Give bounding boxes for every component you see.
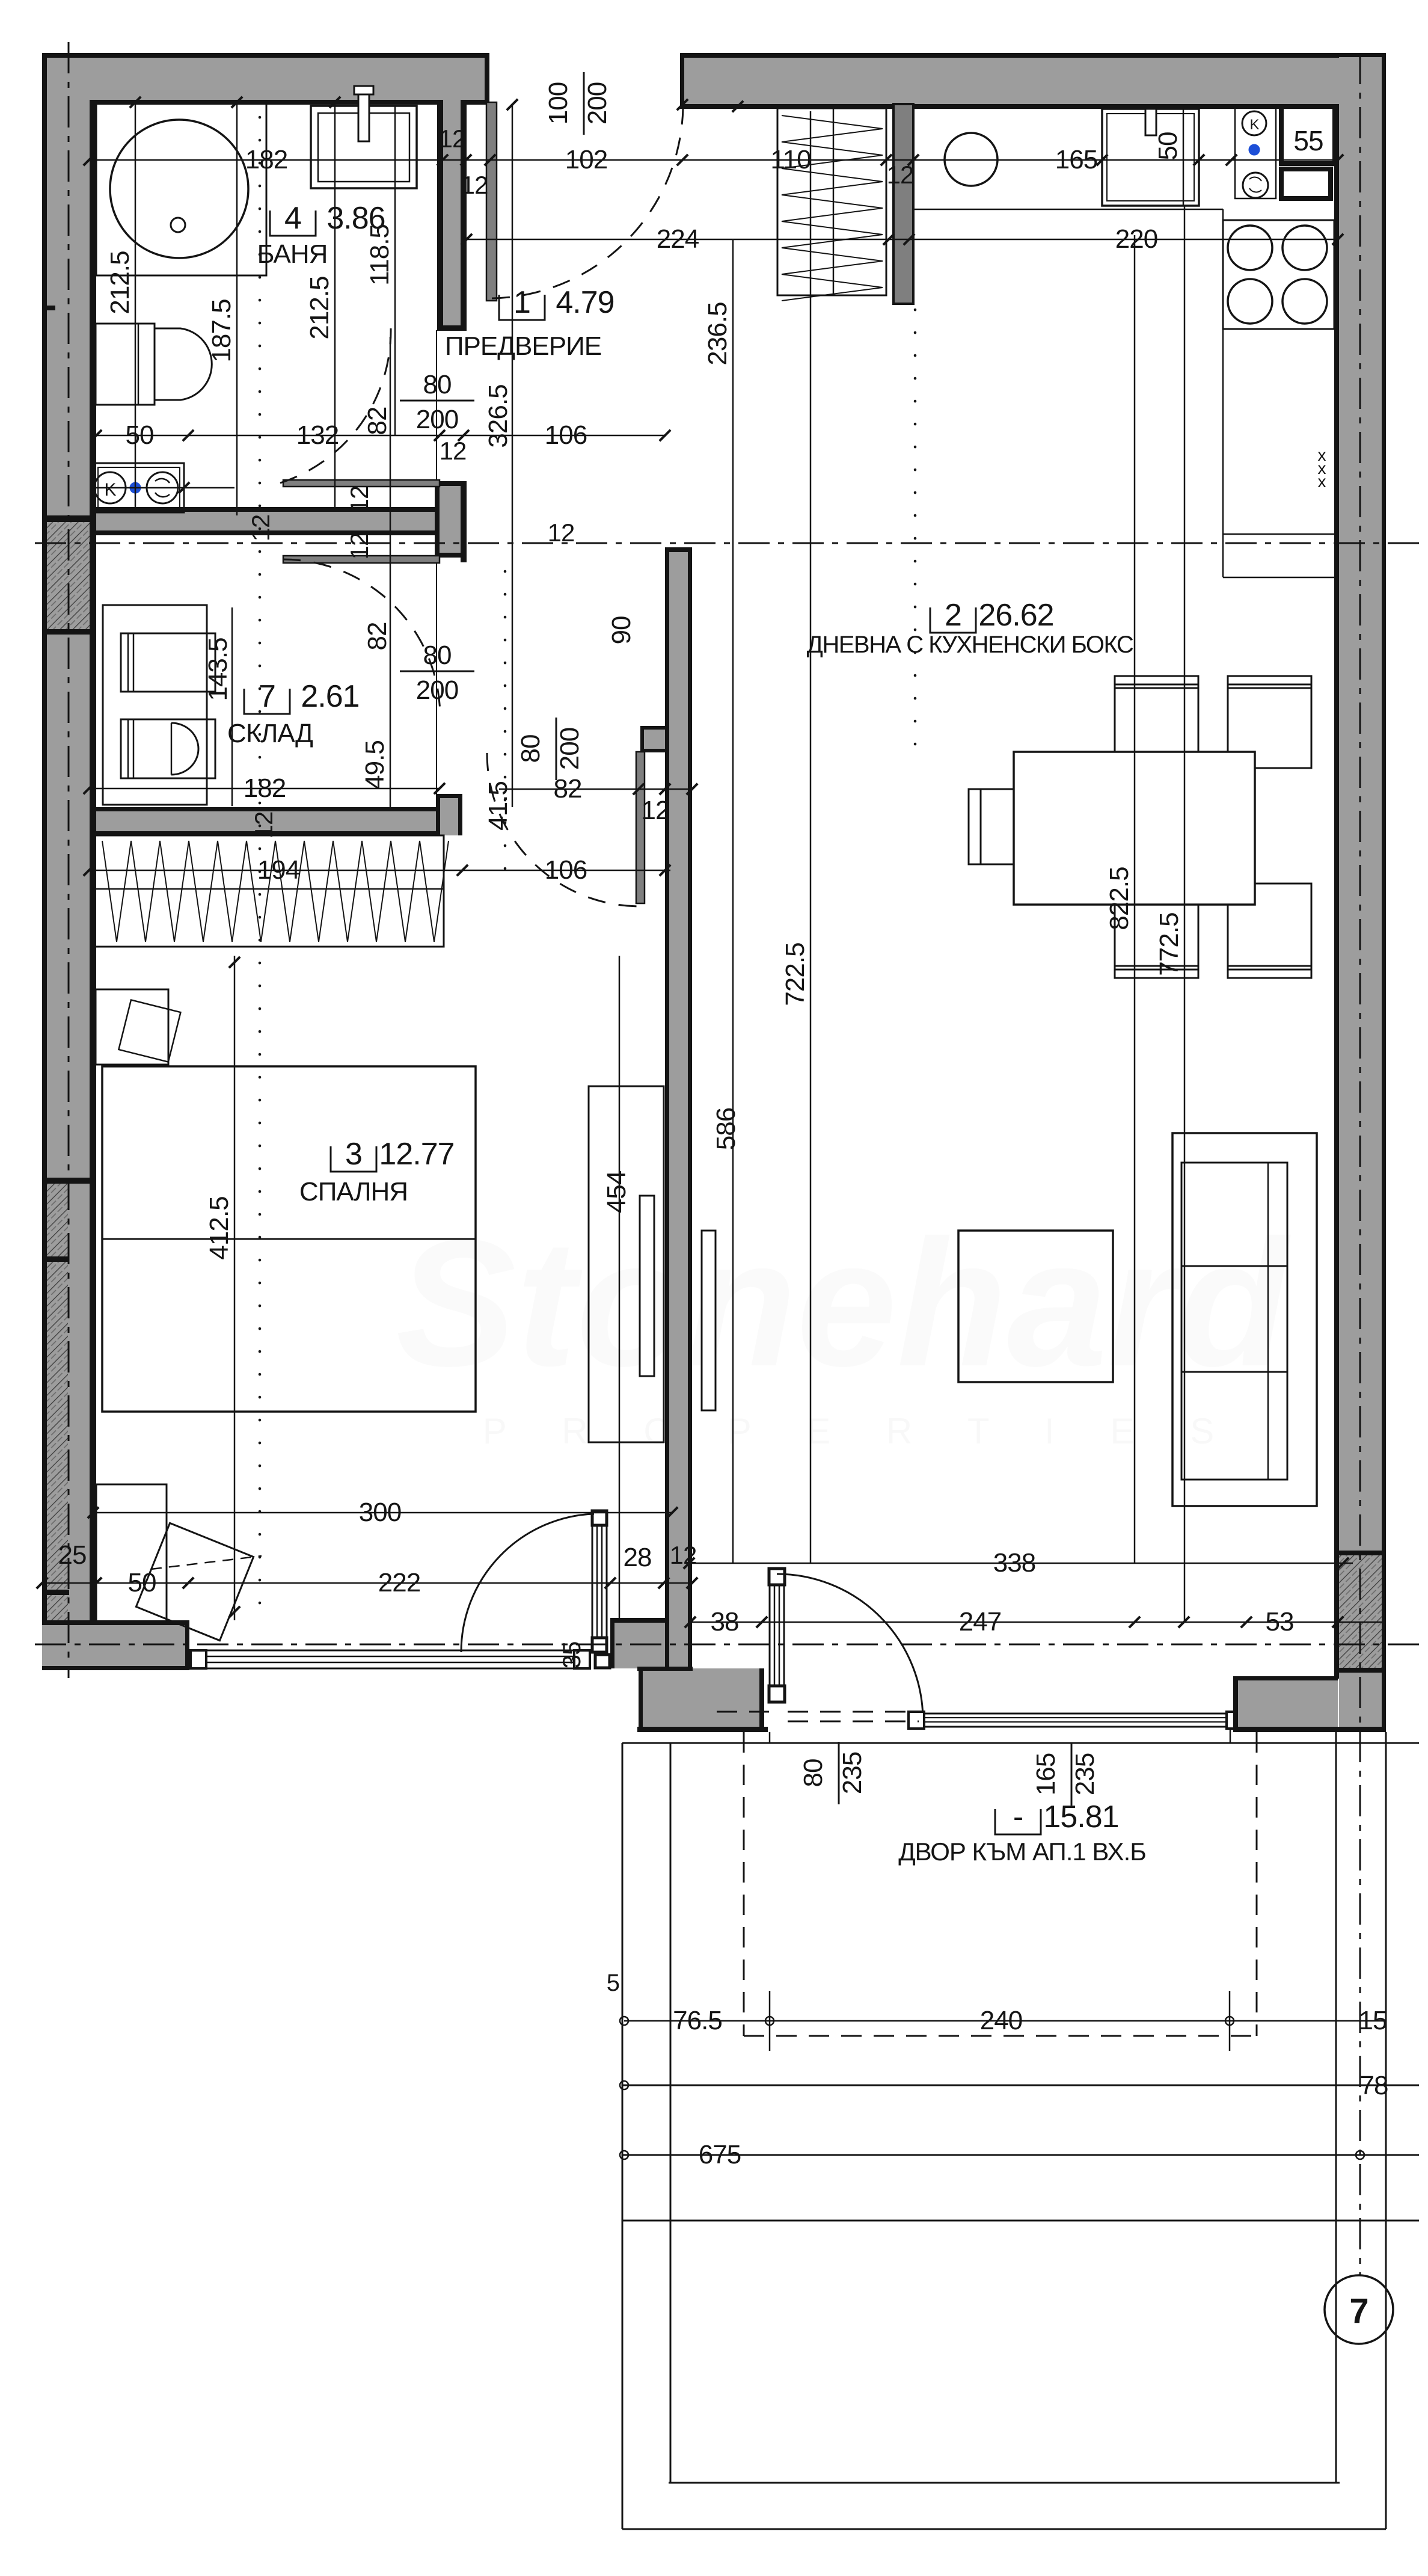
svg-text:41.5: 41.5 xyxy=(483,781,513,831)
svg-text:5: 5 xyxy=(607,1970,619,1996)
svg-text:50: 50 xyxy=(128,1568,156,1597)
svg-text:СПАЛНЯ: СПАЛНЯ xyxy=(299,1177,408,1207)
svg-text:СКЛАД: СКЛАД xyxy=(227,719,313,748)
svg-text:Stonehard: Stonehard xyxy=(396,1202,1293,1404)
svg-text:12: 12 xyxy=(250,812,278,839)
svg-text:412.5: 412.5 xyxy=(204,1196,234,1259)
svg-text:822.5: 822.5 xyxy=(1105,867,1134,930)
svg-text:165: 165 xyxy=(1031,1753,1061,1795)
svg-text:78: 78 xyxy=(1360,2071,1388,2100)
svg-text:50: 50 xyxy=(1153,132,1183,161)
svg-text:80: 80 xyxy=(423,370,452,399)
svg-text:15.81: 15.81 xyxy=(1043,1800,1118,1834)
svg-text:15: 15 xyxy=(1359,2006,1387,2035)
svg-text:55: 55 xyxy=(1293,125,1323,156)
svg-text:165: 165 xyxy=(1055,145,1097,174)
svg-text:3.86: 3.86 xyxy=(326,201,385,236)
svg-text:28: 28 xyxy=(624,1543,652,1572)
svg-text:194: 194 xyxy=(257,855,300,885)
svg-text:240: 240 xyxy=(980,2006,1022,2035)
svg-text:200: 200 xyxy=(555,728,584,770)
svg-text:300: 300 xyxy=(359,1498,401,1527)
svg-text:49.5: 49.5 xyxy=(360,740,390,790)
svg-text:35: 35 xyxy=(557,1642,586,1669)
svg-text:132: 132 xyxy=(296,420,339,450)
svg-text:x: x xyxy=(1318,472,1326,491)
svg-text:3: 3 xyxy=(345,1137,362,1172)
svg-text:82: 82 xyxy=(554,774,582,804)
svg-text:P R O P E R T I E S: P R O P E R T I E S xyxy=(483,1411,1237,1451)
svg-text:12: 12 xyxy=(345,533,373,560)
svg-text:12: 12 xyxy=(440,437,467,465)
svg-text:80: 80 xyxy=(516,735,545,763)
svg-text:90: 90 xyxy=(607,616,636,645)
svg-text:K: K xyxy=(1249,117,1259,133)
svg-text:143.5: 143.5 xyxy=(203,638,233,701)
svg-text:26.62: 26.62 xyxy=(978,598,1053,633)
svg-text:182: 182 xyxy=(244,773,286,803)
svg-text:220: 220 xyxy=(1115,224,1157,254)
svg-text:4.79: 4.79 xyxy=(556,285,614,320)
svg-text:12: 12 xyxy=(345,486,373,513)
svg-text:187.5: 187.5 xyxy=(207,299,236,362)
svg-text:76.5: 76.5 xyxy=(673,2006,722,2035)
svg-text:12: 12 xyxy=(548,518,575,547)
svg-text:222: 222 xyxy=(378,1568,420,1597)
svg-text:326.5: 326.5 xyxy=(483,384,513,447)
svg-text:586: 586 xyxy=(711,1108,741,1150)
svg-text:236.5: 236.5 xyxy=(703,302,732,365)
svg-text:82: 82 xyxy=(363,622,392,651)
svg-text:200: 200 xyxy=(583,82,612,124)
svg-text:722.5: 722.5 xyxy=(780,942,810,1006)
svg-text:4: 4 xyxy=(284,201,301,236)
svg-text:1: 1 xyxy=(513,285,530,320)
svg-text:454: 454 xyxy=(602,1170,631,1213)
svg-text:2.61: 2.61 xyxy=(301,679,359,714)
svg-text:772.5: 772.5 xyxy=(1154,912,1184,976)
svg-text:50: 50 xyxy=(126,420,154,450)
svg-text:247: 247 xyxy=(959,1607,1001,1637)
svg-text:12: 12 xyxy=(887,161,914,189)
svg-text:102: 102 xyxy=(565,145,607,174)
svg-text:338: 338 xyxy=(993,1548,1035,1578)
svg-text:K: K xyxy=(104,480,116,500)
svg-text:7: 7 xyxy=(259,679,275,714)
svg-text:-: - xyxy=(1013,1800,1023,1834)
svg-text:12: 12 xyxy=(642,796,670,825)
svg-text:80: 80 xyxy=(798,1759,828,1788)
svg-text:БАНЯ: БАНЯ xyxy=(257,239,328,269)
svg-text:224: 224 xyxy=(657,224,699,254)
svg-text:ДВОР КЪМ АП.1 ВХ.Б: ДВОР КЪМ АП.1 ВХ.Б xyxy=(898,1837,1146,1866)
svg-text:200: 200 xyxy=(416,405,458,434)
svg-text:12: 12 xyxy=(670,1541,697,1569)
svg-text:182: 182 xyxy=(245,145,287,174)
svg-text:106: 106 xyxy=(545,420,587,450)
svg-text:ДНЕВНА С КУХНЕНСКИ БОКС: ДНЕВНА С КУХНЕНСКИ БОКС xyxy=(807,632,1133,658)
svg-text:38: 38 xyxy=(711,1607,739,1637)
svg-text:212.5: 212.5 xyxy=(105,251,135,314)
svg-text:12: 12 xyxy=(247,515,275,542)
svg-text:53: 53 xyxy=(1266,1607,1294,1637)
svg-text:2: 2 xyxy=(945,598,961,633)
svg-text:200: 200 xyxy=(416,675,458,705)
svg-text:12.77: 12.77 xyxy=(379,1137,454,1172)
svg-text:25: 25 xyxy=(58,1540,87,1570)
svg-text:12: 12 xyxy=(461,171,488,199)
svg-text:235: 235 xyxy=(838,1752,867,1794)
svg-text:235: 235 xyxy=(1070,1753,1100,1795)
svg-text:12: 12 xyxy=(439,124,466,153)
svg-text:ПРЕДВЕРИЕ: ПРЕДВЕРИЕ xyxy=(445,331,601,361)
svg-text:80: 80 xyxy=(423,641,452,670)
svg-text:110: 110 xyxy=(770,145,811,174)
svg-text:100: 100 xyxy=(544,82,573,124)
svg-text:106: 106 xyxy=(545,855,587,885)
svg-text:675: 675 xyxy=(699,2140,741,2169)
svg-text:212.5: 212.5 xyxy=(305,276,334,339)
svg-text:7: 7 xyxy=(1349,2292,1368,2331)
svg-text:82: 82 xyxy=(363,407,392,435)
